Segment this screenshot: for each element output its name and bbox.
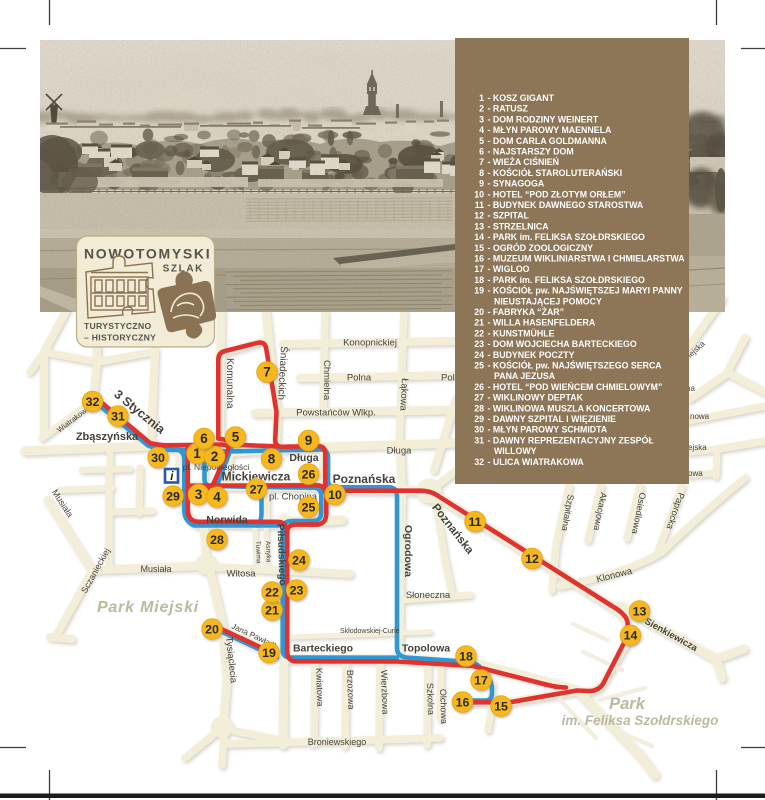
svg-text:- WIGLOO: - WIGLOO bbox=[488, 264, 530, 274]
svg-text:23: 23 bbox=[474, 339, 484, 349]
svg-text:4: 4 bbox=[213, 489, 221, 504]
svg-text:WILLOWY: WILLOWY bbox=[494, 446, 537, 456]
svg-text:Olchowa: Olchowa bbox=[438, 689, 449, 724]
svg-text:TURYSTYCZNO: TURYSTYCZNO bbox=[84, 321, 151, 331]
svg-text:- FABRYKA “ŻAR”: - FABRYKA “ŻAR” bbox=[488, 307, 565, 317]
svg-text:4: 4 bbox=[479, 125, 484, 135]
svg-text:Długa: Długa bbox=[387, 446, 413, 457]
svg-text:17: 17 bbox=[474, 673, 488, 687]
svg-text:9: 9 bbox=[479, 179, 484, 189]
svg-text:- DAWNY REPREZENTACYJNY ZESPÓŁ: - DAWNY REPREZENTACYJNY ZESPÓŁ bbox=[488, 434, 655, 445]
svg-text:14: 14 bbox=[624, 629, 638, 643]
svg-text:Chmielna: Chmielna bbox=[321, 360, 332, 401]
svg-text:2: 2 bbox=[479, 104, 484, 114]
svg-text:Kwiatowa: Kwiatowa bbox=[314, 668, 325, 707]
svg-text:28: 28 bbox=[474, 403, 484, 413]
svg-text:owa: owa bbox=[688, 469, 703, 478]
svg-text:5: 5 bbox=[479, 136, 484, 146]
svg-text:NIEUSTAJĄCEJ POMOCY: NIEUSTAJĄCEJ POMOCY bbox=[494, 296, 602, 306]
svg-text:30: 30 bbox=[474, 425, 484, 435]
svg-text:16: 16 bbox=[474, 254, 484, 264]
svg-text:- MUZEUM WIKLINIARSTWA I CHMIE: - MUZEUM WIKLINIARSTWA I CHMIELARSTWA bbox=[488, 254, 686, 264]
svg-text:24: 24 bbox=[474, 350, 484, 360]
svg-text:Skłodowskiej-Curie: Skłodowskiej-Curie bbox=[340, 628, 400, 635]
svg-text:ejska: ejska bbox=[688, 443, 707, 452]
svg-text:19: 19 bbox=[262, 646, 276, 660]
svg-text:- DAWNY SZPITAL I WIĘZIENIE: - DAWNY SZPITAL I WIĘZIENIE bbox=[488, 414, 617, 424]
svg-text:Długa: Długa bbox=[289, 452, 318, 464]
svg-text:- HOTEL “POD WIEŃCEM CHMIELOWY: - HOTEL “POD WIEŃCEM CHMIELOWYM” bbox=[488, 382, 663, 392]
svg-text:- WILLA HASENFELDERA: - WILLA HASENFELDERA bbox=[488, 318, 596, 328]
svg-text:5: 5 bbox=[232, 429, 240, 444]
svg-text:Tuwima: Tuwima bbox=[254, 541, 262, 564]
svg-text:Powstańców Wlkp.: Powstańców Wlkp. bbox=[296, 408, 376, 419]
svg-text:Topolowa: Topolowa bbox=[402, 643, 450, 655]
svg-text:- STRZELNICA: - STRZELNICA bbox=[488, 221, 550, 231]
svg-text:9: 9 bbox=[305, 433, 313, 448]
svg-text:Park: Park bbox=[609, 695, 646, 713]
svg-text:10: 10 bbox=[474, 189, 484, 199]
svg-text:- BUDYNEK POCZTY: - BUDYNEK POCZTY bbox=[488, 350, 575, 360]
svg-text:13: 13 bbox=[474, 221, 484, 231]
svg-text:24: 24 bbox=[292, 553, 306, 567]
svg-text:27: 27 bbox=[250, 482, 264, 496]
svg-text:NOWOTOMYSKI: NOWOTOMYSKI bbox=[84, 246, 211, 262]
svg-text:- WIEŻA CIŚNIEŃ: - WIEŻA CIŚNIEŃ bbox=[488, 156, 560, 167]
svg-text:12: 12 bbox=[525, 552, 539, 566]
svg-text:22: 22 bbox=[265, 585, 279, 599]
svg-text:13: 13 bbox=[633, 604, 647, 618]
svg-text:- NAJSTARSZY DOM: - NAJSTARSZY DOM bbox=[488, 147, 574, 157]
svg-text:21: 21 bbox=[474, 318, 484, 328]
svg-text:30: 30 bbox=[151, 451, 165, 465]
svg-text:- HOTEL “POD ZŁOTYM ORŁEM”: - HOTEL “POD ZŁOTYM ORŁEM” bbox=[488, 189, 626, 199]
svg-text:Brzozowa: Brzozowa bbox=[345, 670, 356, 710]
svg-text:20: 20 bbox=[205, 622, 219, 636]
svg-text:22: 22 bbox=[474, 328, 484, 338]
svg-text:- KOŚCIÓŁ STAROLUTERAŃSKI: - KOŚCIÓŁ STAROLUTERAŃSKI bbox=[488, 167, 623, 178]
svg-text:32: 32 bbox=[474, 457, 484, 467]
svg-text:25: 25 bbox=[474, 361, 484, 371]
svg-text:nowa: nowa bbox=[690, 412, 710, 421]
svg-text:Komunalna: Komunalna bbox=[224, 358, 235, 409]
svg-text:Pol: Pol bbox=[441, 373, 455, 384]
svg-text:- KUNSTMÜHLE: - KUNSTMÜHLE bbox=[488, 328, 555, 338]
svg-text:- WIKLINOWY DEPTAK: - WIKLINOWY DEPTAK bbox=[488, 393, 584, 403]
svg-text:Barteckiego: Barteckiego bbox=[293, 643, 353, 655]
svg-text:2: 2 bbox=[211, 449, 219, 464]
svg-text:32: 32 bbox=[86, 395, 100, 409]
svg-text:- KOSZ GIGANT: - KOSZ GIGANT bbox=[488, 93, 555, 103]
svg-text:19: 19 bbox=[474, 286, 484, 296]
svg-text:- DOM RODZINY WEINERT: - DOM RODZINY WEINERT bbox=[488, 114, 599, 124]
svg-text:26: 26 bbox=[302, 467, 316, 481]
svg-text:18: 18 bbox=[459, 649, 473, 663]
svg-text:14: 14 bbox=[474, 232, 484, 242]
svg-text:- MŁYN PAROWY SCHMIDTA: - MŁYN PAROWY SCHMIDTA bbox=[488, 425, 608, 435]
svg-text:21: 21 bbox=[265, 603, 279, 617]
svg-text:18: 18 bbox=[474, 275, 484, 285]
svg-text:- DOM CARLA GOLDMANNA: - DOM CARLA GOLDMANNA bbox=[488, 136, 608, 146]
svg-text:3: 3 bbox=[479, 114, 484, 124]
svg-text:Polna: Polna bbox=[347, 373, 372, 384]
svg-text:Park Miejski: Park Miejski bbox=[97, 599, 199, 616]
svg-text:- KOŚCIÓŁ pw. NAJŚWIĘTSZEJ MAR: - KOŚCIÓŁ pw. NAJŚWIĘTSZEJ MARYI PANNY bbox=[488, 285, 683, 296]
svg-text:- BUDYNEK DAWNEGO STAROSTWA: - BUDYNEK DAWNEGO STAROSTWA bbox=[488, 200, 644, 210]
svg-text:- KOŚCIÓŁ pw. NAJŚWIĘTSZEGO SE: - KOŚCIÓŁ pw. NAJŚWIĘTSZEGO SERCA bbox=[488, 360, 663, 371]
svg-text:- WIKLINOWA MUSZLA KONCERTOWA: - WIKLINOWA MUSZLA KONCERTOWA bbox=[488, 403, 652, 413]
svg-text:- PARK im. FELIKSA SZOŁDRSKIEG: - PARK im. FELIKSA SZOŁDRSKIEGO bbox=[488, 232, 646, 242]
svg-text:1: 1 bbox=[479, 93, 484, 103]
svg-text:- MŁYN PAROWY MAENNELA: - MŁYN PAROWY MAENNELA bbox=[488, 125, 612, 135]
svg-text:- ULICA WIATRAKOWA: - ULICA WIATRAKOWA bbox=[488, 457, 585, 467]
svg-text:29: 29 bbox=[474, 414, 484, 424]
svg-text:8: 8 bbox=[268, 451, 276, 466]
svg-text:7: 7 bbox=[263, 364, 271, 379]
svg-text:3: 3 bbox=[195, 487, 203, 502]
svg-text:Ogrodowa: Ogrodowa bbox=[402, 525, 414, 577]
svg-text:17: 17 bbox=[474, 264, 484, 274]
svg-text:Broniewskiego: Broniewskiego bbox=[308, 737, 367, 747]
svg-text:15: 15 bbox=[494, 699, 508, 713]
svg-text:6: 6 bbox=[200, 431, 208, 446]
svg-text:Poznańska: Poznańska bbox=[333, 472, 396, 486]
svg-text:Łąkowa: Łąkowa bbox=[397, 378, 410, 412]
svg-text:16: 16 bbox=[456, 695, 470, 709]
svg-text:Szkolna: Szkolna bbox=[425, 683, 436, 715]
svg-text:im. Feliksa Szołdrskiego: im. Feliksa Szołdrskiego bbox=[562, 713, 719, 728]
svg-text:– HISTORYCZNY: – HISTORYCZNY bbox=[84, 333, 156, 343]
svg-text:Musiała: Musiała bbox=[140, 564, 171, 574]
svg-text:PANA JEZUSA: PANA JEZUSA bbox=[494, 371, 556, 381]
svg-text:28: 28 bbox=[210, 533, 224, 547]
svg-text:Zbąszyńska: Zbąszyńska bbox=[76, 431, 139, 443]
svg-text:- SZPITAL: - SZPITAL bbox=[488, 211, 530, 221]
svg-text:23: 23 bbox=[290, 583, 304, 597]
svg-text:- DOM WOJCIECHA BARTECKIEGO: - DOM WOJCIECHA BARTECKIEGO bbox=[488, 339, 637, 349]
svg-text:11: 11 bbox=[475, 200, 484, 210]
svg-text:Norwida: Norwida bbox=[206, 514, 248, 526]
svg-text:20: 20 bbox=[474, 307, 484, 317]
svg-text:25: 25 bbox=[302, 500, 316, 514]
svg-text:12: 12 bbox=[474, 211, 484, 221]
svg-text:31: 31 bbox=[111, 409, 125, 423]
svg-text:Wierzbowa: Wierzbowa bbox=[379, 670, 391, 715]
svg-text:29: 29 bbox=[166, 489, 180, 503]
svg-text:- SYNAGOGA: - SYNAGOGA bbox=[488, 179, 545, 189]
svg-text:8: 8 bbox=[479, 168, 484, 178]
svg-text:Asnyka: Asnyka bbox=[264, 541, 272, 563]
svg-text:Piłsudskiego: Piłsudskiego bbox=[275, 524, 288, 586]
svg-text:15: 15 bbox=[474, 243, 484, 253]
svg-text:11: 11 bbox=[468, 515, 481, 529]
svg-text:26: 26 bbox=[474, 382, 484, 392]
svg-text:- OGRÓD ZOOLOGICZNY: - OGRÓD ZOOLOGICZNY bbox=[488, 242, 594, 253]
svg-text:- RATUSZ: - RATUSZ bbox=[488, 104, 529, 114]
svg-text:Witosa: Witosa bbox=[226, 569, 256, 580]
svg-text:27: 27 bbox=[474, 393, 484, 403]
svg-text:6: 6 bbox=[479, 147, 484, 157]
svg-text:- PARK im. FELIKSA SZOŁDRSKIEG: - PARK im. FELIKSA SZOŁDRSKIEGO bbox=[488, 275, 646, 285]
svg-text:Konopnickiej: Konopnickiej bbox=[343, 338, 397, 349]
svg-text:31: 31 bbox=[474, 435, 484, 445]
svg-text:10: 10 bbox=[328, 488, 342, 502]
svg-text:7: 7 bbox=[479, 157, 484, 167]
svg-text:Słoneczna: Słoneczna bbox=[406, 590, 451, 601]
